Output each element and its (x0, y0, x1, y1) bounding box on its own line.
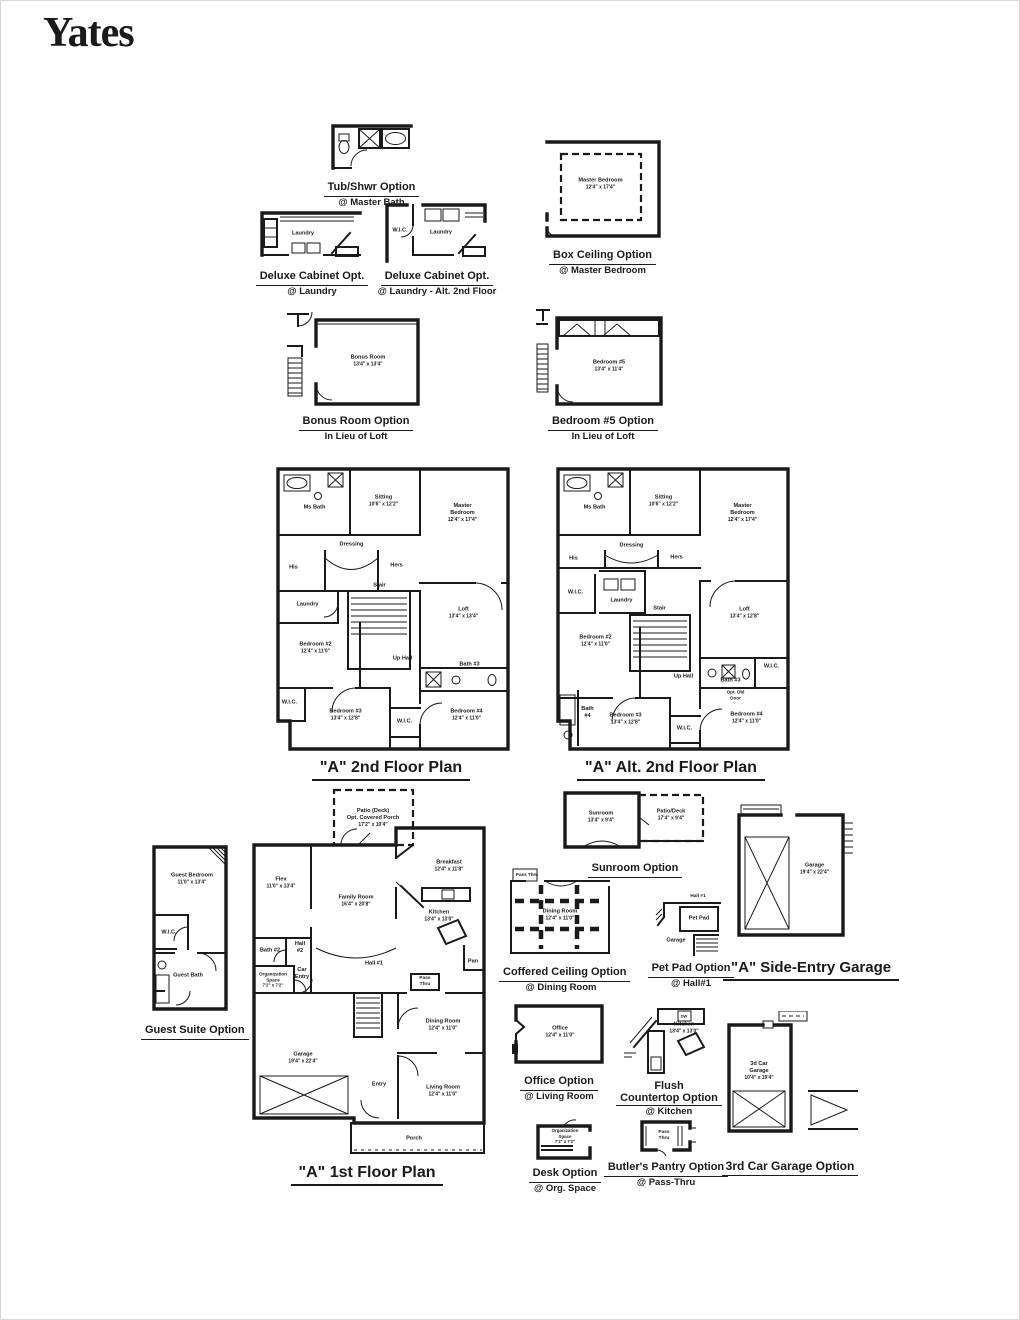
option-title: "A" Side-Entry Garage (723, 959, 868, 981)
option-bonus-room: Bonus Room 13'4" x 13'4" Bonus Room Opti… (282, 306, 430, 442)
room-label: MasterBedroom12'4" x 17'4" (448, 503, 477, 523)
room-label-bonus-room: Bonus Room 13'4" x 13'4" (351, 354, 386, 367)
option-title: Butler's Pantry Option (601, 1161, 731, 1177)
tub-shwr-diagram (329, 122, 415, 178)
room-label: Bedroom #212'4" x 11'0" (299, 641, 331, 654)
option-side-entry-garage: Garage19'4" x 22'4" "A" Side-Entry Garag… (723, 797, 868, 981)
room-label: Pass Thru (516, 872, 538, 878)
option-office: Office12'4" x 11'0" Office Option @ Livi… (503, 1002, 615, 1102)
room-label: Ms Bath (304, 505, 326, 512)
option-butlers-pantry: PassThru Butler's Pantry Option @ Pass-T… (601, 1116, 731, 1188)
room-label: Sitting10'6" x 12'2" (649, 494, 678, 507)
option-title: 3rd Car Garage Option (715, 1159, 865, 1176)
room-label: Pan (468, 959, 478, 966)
option-title: Bonus Room Option (282, 415, 430, 431)
option-bedroom5: Bedroom #5 13'4" x 11'4" Bedroom #5 Opti… (532, 306, 674, 442)
room-label: His (569, 556, 578, 563)
room-label: 3d CarGarage10'4" x 19'4" (744, 1061, 773, 1081)
room-label: W.I.C. (568, 590, 583, 597)
room-label: OrganizationSpace7'2" x 7'2" (552, 1128, 579, 1144)
room-label-laundry: Laundry (292, 231, 314, 238)
room-label: CarEntry (295, 967, 309, 981)
room-label: PassThru (419, 976, 430, 988)
room-label: Dining Room12'4" x 11'0" (543, 908, 578, 921)
option-coffered-ceiling: Pass Thru Dining Room12'4" x 11'0" Coffe… (499, 867, 623, 993)
room-label: Loft13'4" x 12'8" (730, 606, 759, 619)
option-box-ceiling: Master Bedroom 12'4" x 17'4" Box Ceiling… (535, 136, 670, 276)
room-label: PassThru (658, 1130, 669, 1142)
guest-suite-diagram (146, 841, 241, 1021)
page-title: Yates (43, 9, 134, 57)
room-label: Hall #1 (690, 894, 705, 900)
room-label: MasterBedroom12'4" x 17'4" (728, 503, 757, 523)
room-label: Ms Bath (584, 505, 606, 512)
plan-title: "A" 2nd Floor Plan (267, 758, 515, 781)
room-label: Bath #3 (459, 662, 479, 669)
option-title: Desk Option (515, 1167, 615, 1183)
option-subtitle: In Lieu of Loft (282, 431, 430, 442)
option-tub-shwr: Tub/Shwr Option @ Master Bath (304, 122, 439, 208)
room-label: Family Room16'4" x 20'8" (338, 894, 373, 907)
option-title: Tub/Shwr Option (304, 181, 439, 197)
option-subtitle: In Lieu of Loft (532, 431, 674, 442)
room-label: Sitting10'6" x 12'2" (369, 494, 398, 507)
room-label: Guest Bedroom11'0" x 13'4" (171, 872, 213, 885)
box-ceiling-diagram (539, 136, 667, 246)
option-title: Guest Suite Option (141, 1024, 246, 1040)
option-title: Deluxe Cabinet Opt. (253, 270, 371, 286)
option-subtitle: @ Dining Room (499, 982, 623, 993)
room-label: Stair (653, 606, 665, 613)
option-deluxe-cabinet-laundry: Laundry Deluxe Cabinet Opt. @ Laundry (253, 207, 371, 297)
room-label: Garage (666, 938, 685, 945)
room-label: Loft13'4" x 13'4" (449, 606, 478, 619)
room-label: Laundry (610, 598, 632, 605)
room-label: Entry (372, 1082, 386, 1089)
option-subtitle: @ Laundry (253, 286, 371, 297)
option-subtitle: @ Org. Space (515, 1183, 615, 1194)
room-label: Bedroom #212'4" x 11'0" (579, 634, 611, 647)
option-title: Deluxe Cabinet Opt. (377, 270, 497, 286)
option-subtitle: @ Living Room (503, 1091, 615, 1102)
floor-plan-sheet: Yates Tub/Shwr Option @ Master Bath (0, 0, 1020, 1320)
room-label: Garage19'4" x 22'4" (800, 862, 829, 875)
option-desk: OrganizationSpace7'2" x 7'2" Desk Option… (515, 1116, 615, 1194)
room-label: Up Hall (674, 674, 693, 681)
room-label: Porch (406, 1136, 422, 1143)
room-label: His (289, 565, 298, 572)
option-flush-countertop: Kitchen13'4" x 13'0" DW Flush Countertop… (613, 1001, 725, 1118)
room-label: Dressing (340, 542, 364, 549)
room-label: Bath#4 (581, 706, 593, 720)
room-label: Hall #1 (365, 961, 383, 968)
room-label: W.I.C. (161, 930, 176, 937)
option-subtitle: @ Laundry - Alt. 2nd Floor (377, 286, 497, 297)
room-label: Hers (390, 563, 402, 570)
room-label: Bedroom #313'4" x 12'8" (329, 708, 361, 721)
option-guest-suite: Guest Bedroom11'0" x 13'4" W.I.C. Guest … (141, 841, 246, 1040)
room-label: Hall#2 (295, 941, 305, 955)
option-deluxe-cabinet-alt: W.I.C. Laundry Deluxe Cabinet Opt. @ Lau… (377, 201, 497, 297)
room-label-dw: DW (681, 1014, 688, 1019)
room-label: Guest Bath (173, 973, 203, 980)
third-car-garage-diagram (719, 1011, 861, 1141)
room-label-wic: W.I.C. (392, 228, 407, 235)
option-title: Coffered Ceiling Option (499, 966, 623, 982)
room-label: W.I.C. (282, 700, 297, 707)
plan-title: "A" Alt. 2nd Floor Plan (547, 758, 795, 781)
room-label: W.I.C. (677, 726, 692, 733)
option-title: Bedroom #5 Option (532, 415, 674, 431)
room-label: Kitchen13'4" x 13'0" (424, 909, 453, 922)
plan-title: "A" 1st Floor Plan (243, 1163, 491, 1186)
room-label: Patio/Deck17'4" x 9'4" (657, 808, 686, 821)
room-label: Stair (373, 583, 385, 590)
room-label: Patio (Deck)Opt. Covered Porch17'2" x 10… (347, 808, 400, 828)
plan-first-floor: Patio (Deck)Opt. Covered Porch17'2" x 10… (243, 788, 491, 1186)
room-label-laundry: Laundry (430, 230, 452, 237)
option-sunroom: Sunroom13'4" x 9'4" Patio/Deck17'4" x 9'… (559, 789, 711, 878)
option-title: Box Ceiling Option (535, 249, 670, 265)
room-label: OrganizationSpace7'2" x 7'2" (259, 972, 287, 989)
flush-countertop-diagram (620, 1001, 718, 1077)
option-3rd-car-garage: 3d CarGarage10'4" x 19'4" 3rd Car Garage… (715, 1011, 865, 1176)
room-label: Pet Pad (689, 916, 710, 923)
room-label: Opt. DblDoor (727, 689, 745, 700)
room-label: Flex11'0" x 13'4" (266, 876, 295, 889)
room-label: Bath #2 (260, 948, 280, 955)
room-label: Bedroom #412'4" x 11'0" (450, 708, 482, 721)
room-label-master-bedroom: Master Bedroom 12'4" x 17'4" (578, 177, 622, 190)
option-subtitle: @ Master Bedroom (535, 265, 670, 276)
room-label: Bedroom #313'4" x 12'8" (609, 712, 641, 725)
room-label: Living Room12'4" x 11'0" (426, 1084, 460, 1097)
room-label: W.I.C. (397, 719, 412, 726)
room-label: Garage19'4" x 22'4" (288, 1051, 317, 1064)
room-label: Dressing (620, 543, 644, 550)
room-label-bedroom5: Bedroom #5 13'4" x 11'4" (593, 359, 625, 372)
option-title: Flush Countertop Option (613, 1080, 725, 1106)
room-label: Breakfast12'4" x 11'8" (434, 859, 463, 872)
plan-alt-second-floor: Ms Bath Sitting10'6" x 12'2" MasterBedro… (547, 463, 795, 781)
plan-second-floor: Ms Bath Sitting10'6" x 12'2" MasterBedro… (267, 463, 515, 781)
option-title: Office Option (503, 1075, 615, 1091)
room-label: Bath #3 (720, 678, 740, 685)
room-label: Up Hall (393, 656, 412, 663)
room-label: W.I.C. (764, 664, 779, 671)
room-label: Kitchen13'4" x 13'0" (669, 1021, 698, 1034)
option-subtitle: @ Pass-Thru (601, 1177, 731, 1188)
room-label: Laundry (296, 602, 318, 609)
room-label: Dining Room12'4" x 11'0" (426, 1018, 461, 1031)
room-label: Bedroom #412'4" x 11'0" (730, 711, 762, 724)
sunroom-diagram (561, 789, 709, 859)
room-label: Hers (670, 555, 682, 562)
side-entry-garage-diagram (731, 797, 861, 945)
room-label: Office12'4" x 11'0" (545, 1025, 574, 1038)
room-label: Sunroom13'4" x 9'4" (588, 810, 615, 823)
